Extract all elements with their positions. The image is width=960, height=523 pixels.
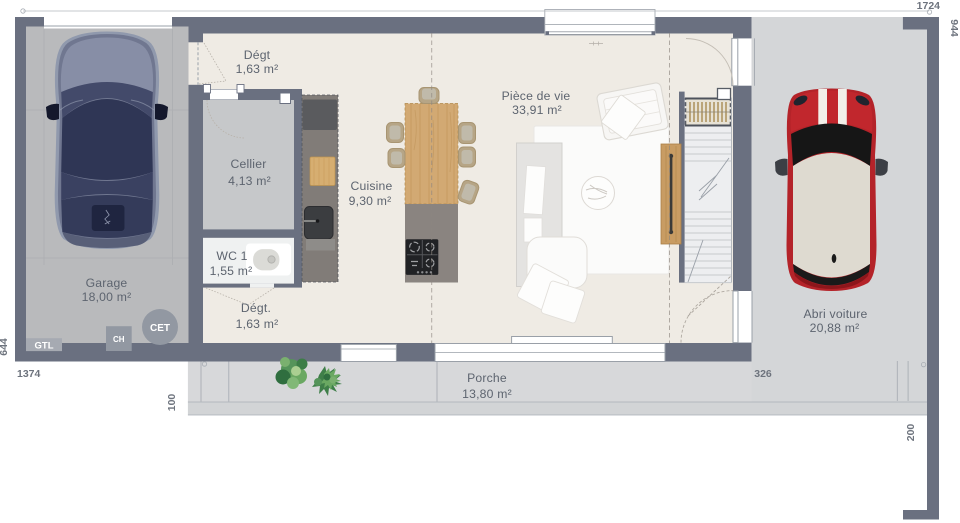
svg-text:GTL: GTL (35, 341, 54, 352)
svg-text:33,91 m²: 33,91 m² (512, 103, 562, 117)
svg-text:1,63 m²: 1,63 m² (236, 62, 279, 76)
svg-text:9,30 m²: 9,30 m² (349, 194, 392, 208)
svg-text:100: 100 (166, 394, 178, 412)
svg-text:1724: 1724 (917, 0, 941, 12)
svg-text:200: 200 (905, 424, 917, 442)
svg-text:644: 644 (0, 338, 10, 356)
svg-text:CET: CET (150, 323, 170, 334)
svg-text:Cuisine: Cuisine (350, 179, 392, 193)
svg-text:944: 944 (948, 19, 960, 37)
svg-text:4,13 m²: 4,13 m² (228, 174, 271, 188)
svg-text:Garage: Garage (86, 276, 128, 290)
svg-text:CH: CH (113, 335, 125, 344)
svg-text:1,63 m²: 1,63 m² (236, 317, 279, 331)
svg-text:1374: 1374 (17, 368, 41, 380)
svg-text:Pièce de vie: Pièce de vie (502, 89, 571, 103)
svg-text:WC 1: WC 1 (216, 249, 247, 263)
svg-text:20,88 m²: 20,88 m² (810, 321, 860, 335)
svg-text:1,55 m²: 1,55 m² (210, 264, 253, 278)
svg-text:18,00 m²: 18,00 m² (82, 290, 132, 304)
svg-text:13,80 m²: 13,80 m² (462, 387, 512, 401)
svg-text:Abri voiture: Abri voiture (803, 307, 867, 321)
svg-text:Cellier: Cellier (231, 157, 267, 171)
svg-text:Dégt: Dégt (244, 48, 271, 62)
svg-text:Dégt.: Dégt. (241, 301, 271, 315)
svg-text:326: 326 (754, 368, 772, 380)
svg-text:Porche: Porche (467, 371, 507, 385)
